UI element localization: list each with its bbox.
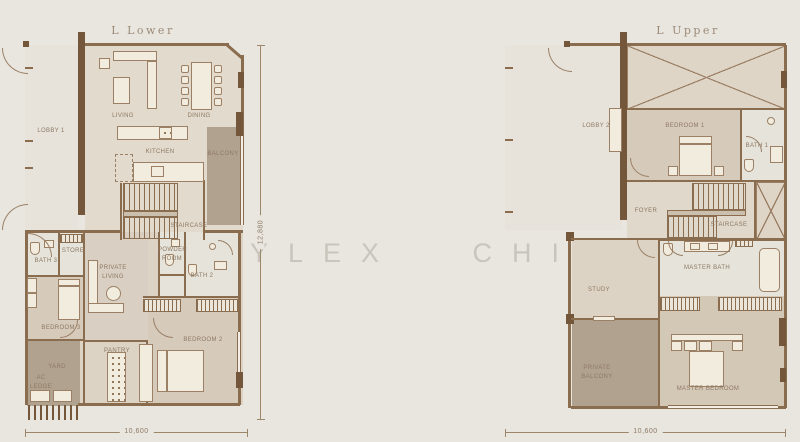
balcony-floor <box>207 127 243 225</box>
wall <box>25 140 33 142</box>
sofa <box>147 61 157 109</box>
wall <box>658 238 660 408</box>
watermark-text: YLEX CHIA <box>250 238 617 269</box>
wall <box>505 211 513 213</box>
dimension-value: 10,600 <box>119 428 153 435</box>
nightstand <box>714 166 724 176</box>
door-hinge <box>564 41 570 47</box>
washer <box>27 278 37 293</box>
round-table <box>106 286 121 301</box>
room-label: PRIVATE BALCONY <box>578 364 616 381</box>
wall <box>25 275 85 277</box>
wall <box>78 403 240 406</box>
room-label: BEDROOM 2 <box>183 336 222 345</box>
ac-louver <box>28 405 80 420</box>
dimension-width-lower: 10,600 <box>25 428 248 438</box>
room-label: MASTER BATH <box>684 264 730 273</box>
floorplan-canvas: YLEX CHIA L Lower <box>0 0 800 442</box>
dimension-height-lower: 12,880 <box>256 45 266 420</box>
shower-drain <box>767 117 775 125</box>
staircase-flight <box>123 183 178 211</box>
staircase-flight <box>692 183 746 210</box>
wall <box>25 230 120 233</box>
wall <box>781 71 787 88</box>
wall <box>83 232 85 405</box>
ac-unit <box>53 390 72 402</box>
wall <box>120 183 122 240</box>
shower-drain <box>209 243 216 250</box>
chair <box>181 65 189 73</box>
room-label: BEDROOM 3 <box>41 324 80 333</box>
bed-pillow <box>58 279 80 286</box>
sink <box>151 166 164 177</box>
upper-plan-title: L Upper <box>656 24 719 37</box>
wall <box>158 274 186 276</box>
nightstand <box>668 166 678 176</box>
void-area <box>756 182 786 240</box>
bed <box>58 286 80 320</box>
room-label: MASTER BEDROOM <box>677 385 740 394</box>
wall <box>740 180 786 182</box>
room-label: YARD <box>48 363 66 372</box>
room-label: BALCONY <box>207 150 238 159</box>
bed <box>167 350 204 392</box>
wall <box>567 43 786 46</box>
sofa <box>113 51 157 61</box>
wall <box>27 339 83 341</box>
wall <box>627 180 740 182</box>
room-label: BEDROOM 1 <box>665 122 704 131</box>
wardrobe <box>718 297 782 311</box>
room-label: STAIRCASE <box>171 222 208 231</box>
basin <box>708 243 718 250</box>
window-sill <box>593 316 615 321</box>
dryer <box>27 293 37 308</box>
room-label: FOYER <box>635 207 657 216</box>
kitchen-counter <box>133 162 204 182</box>
chair <box>181 87 189 95</box>
lower-plan-title: L Lower <box>111 24 174 37</box>
room-label: PANTRY <box>104 347 130 356</box>
kitchen-island <box>117 126 188 140</box>
bathtub <box>759 248 780 292</box>
bed <box>679 144 712 176</box>
wardrobe <box>660 297 700 311</box>
dimension-tick <box>505 429 506 437</box>
wall <box>236 372 243 388</box>
lobby2-floor <box>505 45 622 230</box>
chair <box>214 65 222 73</box>
dimension-value: 12,880 <box>258 215 265 249</box>
door-hinge <box>23 41 29 47</box>
chair <box>181 98 189 106</box>
cabinet <box>99 58 110 69</box>
bed-pillow <box>679 136 712 144</box>
balcony-window <box>240 128 244 225</box>
wall <box>25 167 33 169</box>
room-label: BATH 2 <box>191 272 214 281</box>
toilet <box>744 159 754 172</box>
door-swing <box>2 48 28 74</box>
wall <box>571 406 660 409</box>
pillar <box>78 32 85 215</box>
room-label: BATH 3 <box>35 257 58 266</box>
bedroom2-window <box>237 332 241 372</box>
wall <box>238 72 244 88</box>
basin <box>770 146 783 163</box>
basin <box>214 261 227 270</box>
chair <box>214 98 222 106</box>
wall <box>754 182 756 240</box>
chair <box>214 87 222 95</box>
dimension-tick <box>257 45 265 46</box>
room-label: KITCHEN <box>146 148 175 157</box>
basin <box>690 243 700 250</box>
dimension-tick <box>257 419 265 420</box>
lobby1-floor <box>25 45 78 232</box>
room-label: POWDER ROOM <box>158 246 186 263</box>
wardrobe <box>143 299 181 312</box>
wall <box>780 368 786 382</box>
wall <box>779 318 786 346</box>
wall <box>505 139 513 141</box>
room-label: STAIRCASE <box>711 221 748 230</box>
room-label: LIVING <box>112 112 134 121</box>
wall <box>85 340 147 342</box>
nightstand <box>732 341 743 351</box>
bed <box>689 351 724 387</box>
dimension-value: 10,600 <box>628 428 662 435</box>
wall <box>143 296 240 298</box>
room-label: DINING <box>187 112 210 121</box>
shaft <box>609 108 622 152</box>
dimension-tick <box>25 429 26 437</box>
chair <box>181 76 189 84</box>
room-label: STUDY <box>588 286 610 295</box>
wall <box>784 45 787 408</box>
wall <box>158 232 160 298</box>
bath-shelf <box>735 240 753 247</box>
dining-table <box>191 62 212 110</box>
room-label: BATH 1 <box>746 142 769 151</box>
wall <box>740 110 742 182</box>
wall <box>627 108 786 110</box>
wall <box>505 67 513 69</box>
headboard <box>671 334 743 341</box>
staircase-flight <box>667 216 717 238</box>
room-label: PRIVATE LIVING <box>96 264 130 281</box>
master-bedroom-window <box>668 405 778 409</box>
wall <box>184 232 186 298</box>
dimension-width-upper: 10,600 <box>505 428 786 438</box>
wardrobe <box>196 299 238 312</box>
armchair <box>113 77 130 104</box>
pantry-island <box>107 352 126 402</box>
bed-pillow <box>699 341 712 351</box>
room-label: LOBBY 2 <box>582 122 609 131</box>
wall <box>236 112 243 136</box>
chair <box>214 76 222 84</box>
bed-pillow <box>684 341 697 351</box>
kitchen-void <box>115 154 133 182</box>
room-label: STORE <box>62 247 84 256</box>
store-shelf <box>60 234 83 243</box>
wall <box>78 43 229 46</box>
room-label: LOBBY 1 <box>37 127 64 136</box>
wall <box>203 230 243 233</box>
sofa <box>88 303 124 313</box>
dimension-tick <box>785 429 786 437</box>
bed-pillow <box>157 350 167 392</box>
wall <box>203 180 205 240</box>
room-label: AC LEDGE <box>28 374 54 391</box>
wall <box>571 318 660 320</box>
ac-unit <box>30 390 50 402</box>
tall-cabinet <box>139 344 153 402</box>
dimension-tick <box>247 429 248 437</box>
door-swing <box>2 204 28 230</box>
stove <box>159 127 172 139</box>
void-area <box>627 45 786 110</box>
nightstand <box>671 341 682 351</box>
